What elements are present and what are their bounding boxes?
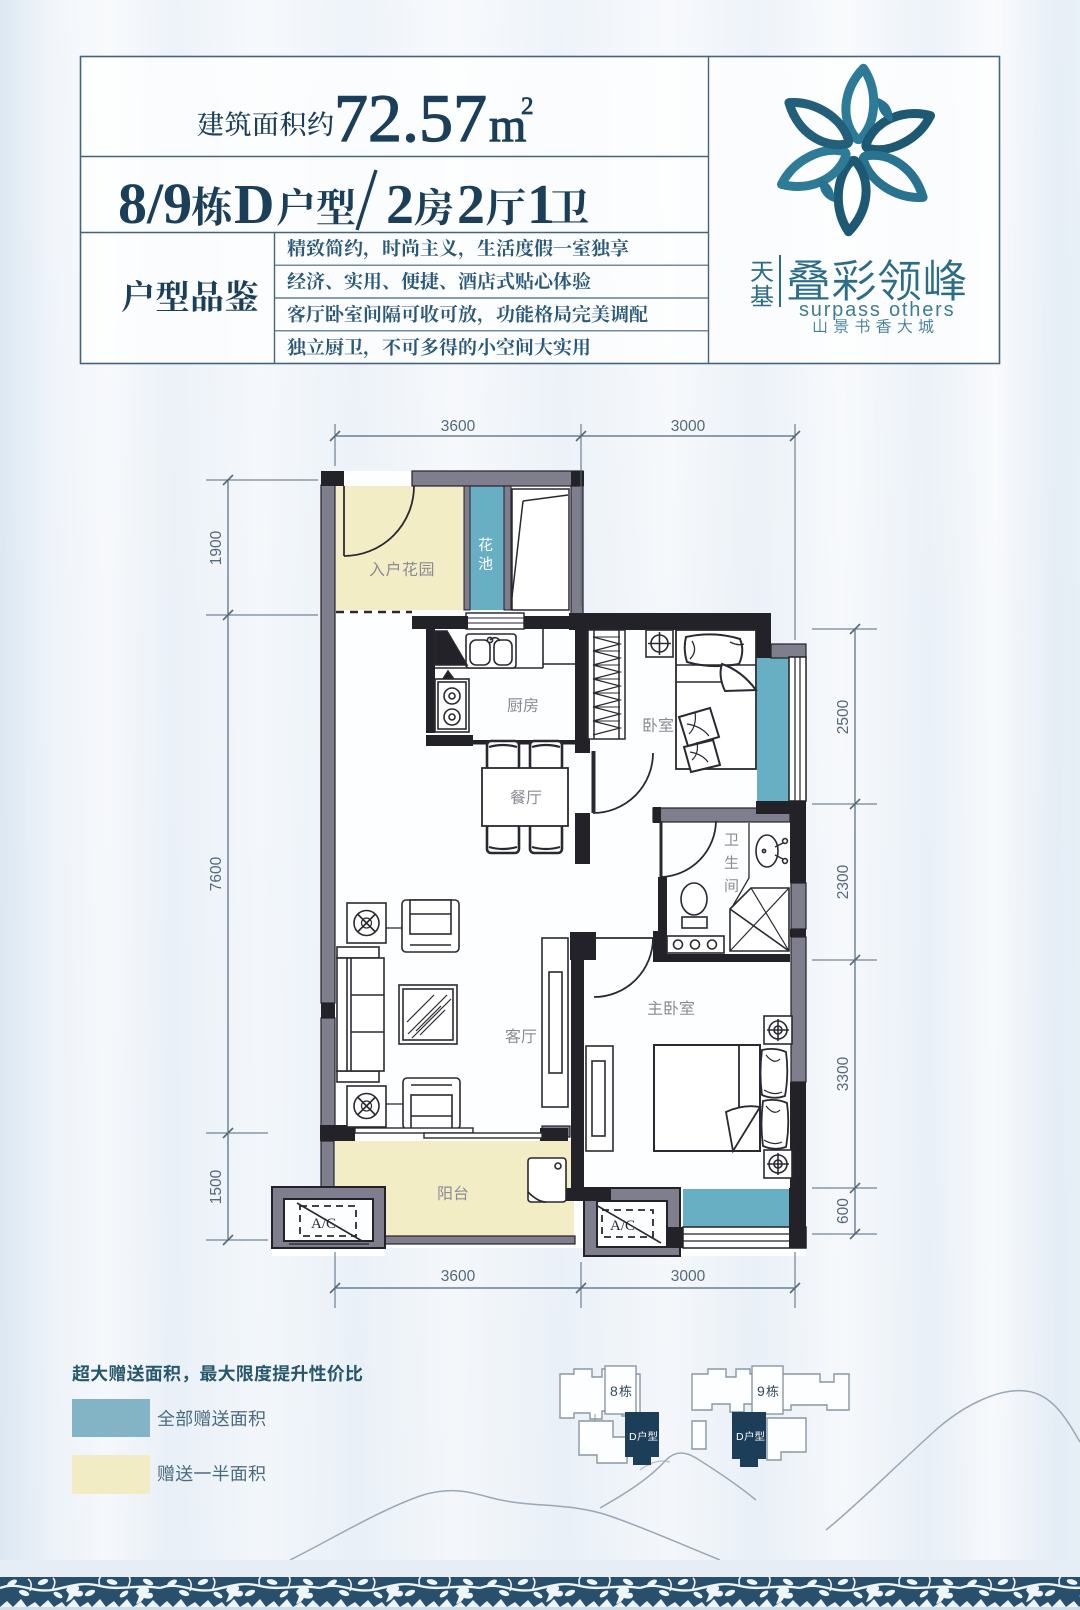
- svg-text:A/C: A/C: [311, 1216, 336, 1232]
- svg-text:A/C: A/C: [610, 1218, 635, 1234]
- svg-text:7600: 7600: [208, 856, 225, 891]
- svg-text:D: D: [234, 174, 274, 236]
- svg-text:2300: 2300: [835, 864, 852, 899]
- svg-text:3600: 3600: [441, 418, 476, 435]
- svg-text:8/9: 8/9: [118, 171, 192, 236]
- svg-text:3600: 3600: [441, 1268, 476, 1285]
- svg-text:72.57: 72.57: [334, 80, 487, 156]
- svg-text:3300: 3300: [835, 1056, 852, 1091]
- svg-text:2: 2: [521, 93, 534, 120]
- svg-text:8: 8: [610, 1383, 618, 1399]
- svg-text:D: D: [736, 1431, 744, 1443]
- svg-text:2500: 2500: [835, 699, 852, 734]
- svg-text:surpass others: surpass others: [799, 299, 955, 321]
- svg-text:D: D: [629, 1431, 637, 1443]
- svg-text:3000: 3000: [671, 418, 706, 435]
- svg-text:1500: 1500: [208, 1169, 225, 1204]
- svg-text:3000: 3000: [671, 1268, 706, 1285]
- svg-text:600: 600: [835, 1198, 852, 1224]
- svg-text:2: 2: [386, 174, 414, 236]
- svg-text:9: 9: [757, 1383, 765, 1399]
- svg-text:2: 2: [457, 174, 485, 236]
- svg-text:1900: 1900: [208, 530, 225, 565]
- svg-text:1: 1: [527, 174, 555, 236]
